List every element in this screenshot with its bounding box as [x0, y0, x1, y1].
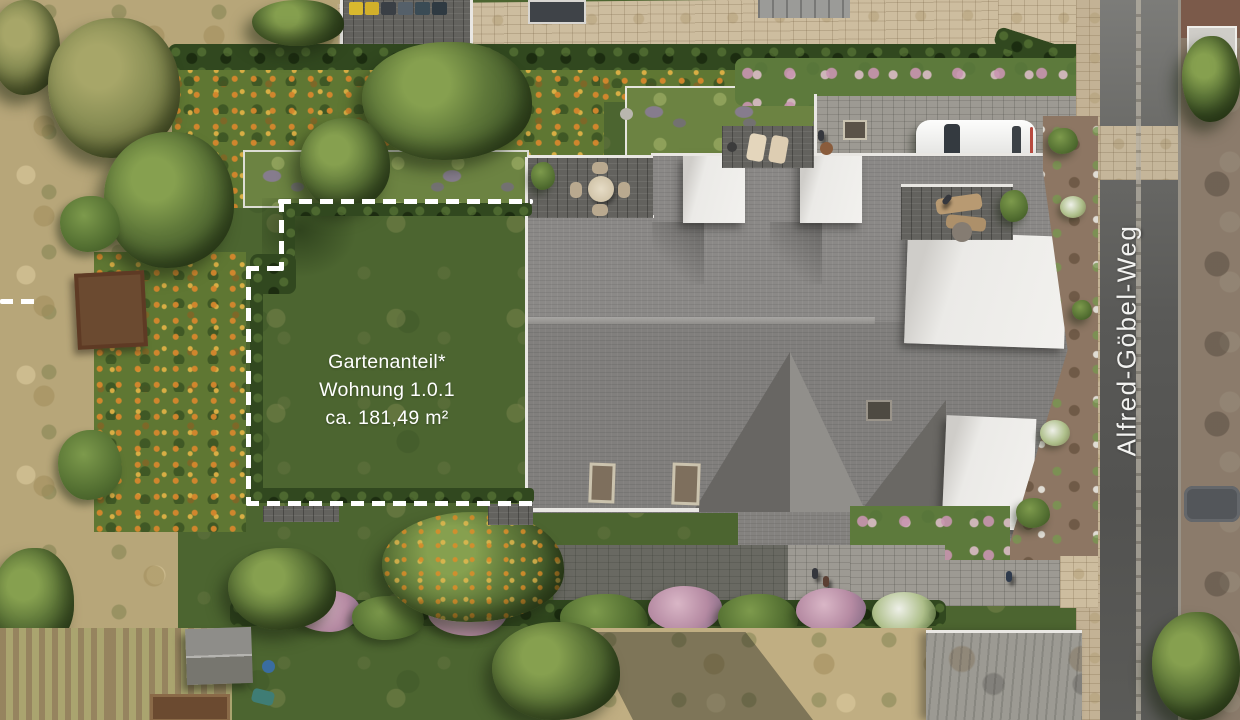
waste-bin-yellow	[349, 2, 363, 15]
boundary-dash-bottom	[246, 501, 534, 506]
bush-left-a	[60, 196, 120, 252]
neighbor-roof-top	[758, 0, 850, 18]
boundary-dash-edge-left	[0, 299, 40, 304]
raised-planter-bed	[74, 270, 148, 350]
terrace-plant-right	[1000, 190, 1028, 222]
skylight-small-right	[866, 400, 892, 421]
wooden-frame-bed	[150, 694, 230, 720]
boundary-dash-left-upper	[279, 199, 284, 271]
street-name-label: Alfred-Göbel-Weg	[1112, 221, 1143, 461]
flower-bush-bottom	[796, 588, 866, 632]
flat-roof-white-box	[904, 231, 1068, 349]
sidewalk-junction	[1060, 556, 1098, 608]
garden-shed-top	[528, 0, 586, 24]
lounge-table	[952, 222, 972, 242]
waste-bin-yellow	[365, 2, 379, 15]
waste-bin-blue	[415, 2, 430, 15]
bush-left-b	[58, 430, 122, 500]
person-walking-2	[823, 576, 829, 587]
skylight-small-top	[843, 120, 867, 140]
garage-roof-edge	[926, 630, 1082, 633]
barrel-blue	[262, 660, 275, 673]
dormer-shadow-b	[770, 222, 822, 284]
street-name-text: Alfred-Göbel-Weg	[1112, 225, 1142, 457]
boundary-dash-top	[278, 199, 533, 204]
garden-label-line3: ca. 181,49 m²	[287, 404, 487, 432]
plot-hedge-top	[282, 203, 532, 216]
roof-vent	[620, 108, 633, 120]
garden-label-line1: Gartenanteil*	[287, 348, 487, 376]
skylight-a	[588, 463, 615, 504]
roof-ridge	[527, 317, 875, 324]
terrace-pad-small-right	[488, 504, 533, 525]
tree-big-top-center	[362, 42, 532, 160]
person-on-garage-roof	[818, 130, 824, 141]
waste-bin-dark	[432, 2, 447, 15]
skylight-b	[671, 463, 700, 506]
tree-right-of-road	[1182, 36, 1240, 122]
boundary-dash-jog	[246, 266, 284, 271]
shrub-roadside	[1048, 128, 1078, 154]
terrace-table	[588, 176, 614, 202]
terrace-pad-small-left	[263, 506, 339, 522]
tree-big-bottom	[382, 512, 564, 622]
terrace-chair	[592, 162, 608, 174]
garden-plot-label: Gartenanteil* Wohnung 1.0.1 ca. 181,49 m…	[287, 348, 487, 432]
waste-bin-gray	[381, 2, 396, 15]
terrace-chair	[592, 204, 608, 216]
aerial-property-render: Alfred-Göbel-Weg	[0, 0, 1240, 720]
tree-left-2	[104, 132, 234, 268]
dark-parked-car	[1184, 486, 1240, 522]
shrub-roadside	[1072, 300, 1092, 320]
garden-shed-bottom	[185, 627, 253, 685]
boundary-dash-left	[246, 266, 251, 506]
eave-top-main	[651, 153, 1091, 156]
grill	[727, 142, 737, 152]
terrace-plant-left	[531, 162, 555, 190]
eave-bottom-left	[527, 508, 699, 512]
person-on-walkway	[1006, 571, 1012, 582]
driveway-edge-wall	[814, 94, 817, 156]
person-walking-1	[812, 568, 818, 579]
shrub-roadside	[1016, 498, 1050, 528]
bushes-bottom-right	[1152, 612, 1240, 720]
waste-bin-gray	[398, 2, 413, 15]
terrace-left-rail-top	[527, 155, 653, 158]
garden-label-line2: Wohnung 1.0.1	[287, 376, 487, 404]
terrace-chair	[618, 182, 630, 198]
bistro-table	[820, 142, 833, 155]
tree-top-center-small	[300, 118, 390, 210]
plot-hedge-left	[250, 270, 263, 502]
flower-bush-bottom	[648, 586, 722, 632]
dormer-shadow-a	[652, 222, 704, 284]
terrace-right-rail	[901, 184, 1013, 187]
shrub-white-roadside	[1040, 420, 1070, 446]
tree-top-mid	[252, 0, 344, 46]
tree-bottom-left	[228, 548, 336, 630]
tree-bottom-center	[492, 622, 620, 720]
terrace-chair	[570, 182, 582, 198]
eave-left-vertical	[525, 218, 528, 514]
flat-garage-roof-bottom	[926, 632, 1082, 720]
shrub-white-roadside	[1060, 196, 1086, 218]
